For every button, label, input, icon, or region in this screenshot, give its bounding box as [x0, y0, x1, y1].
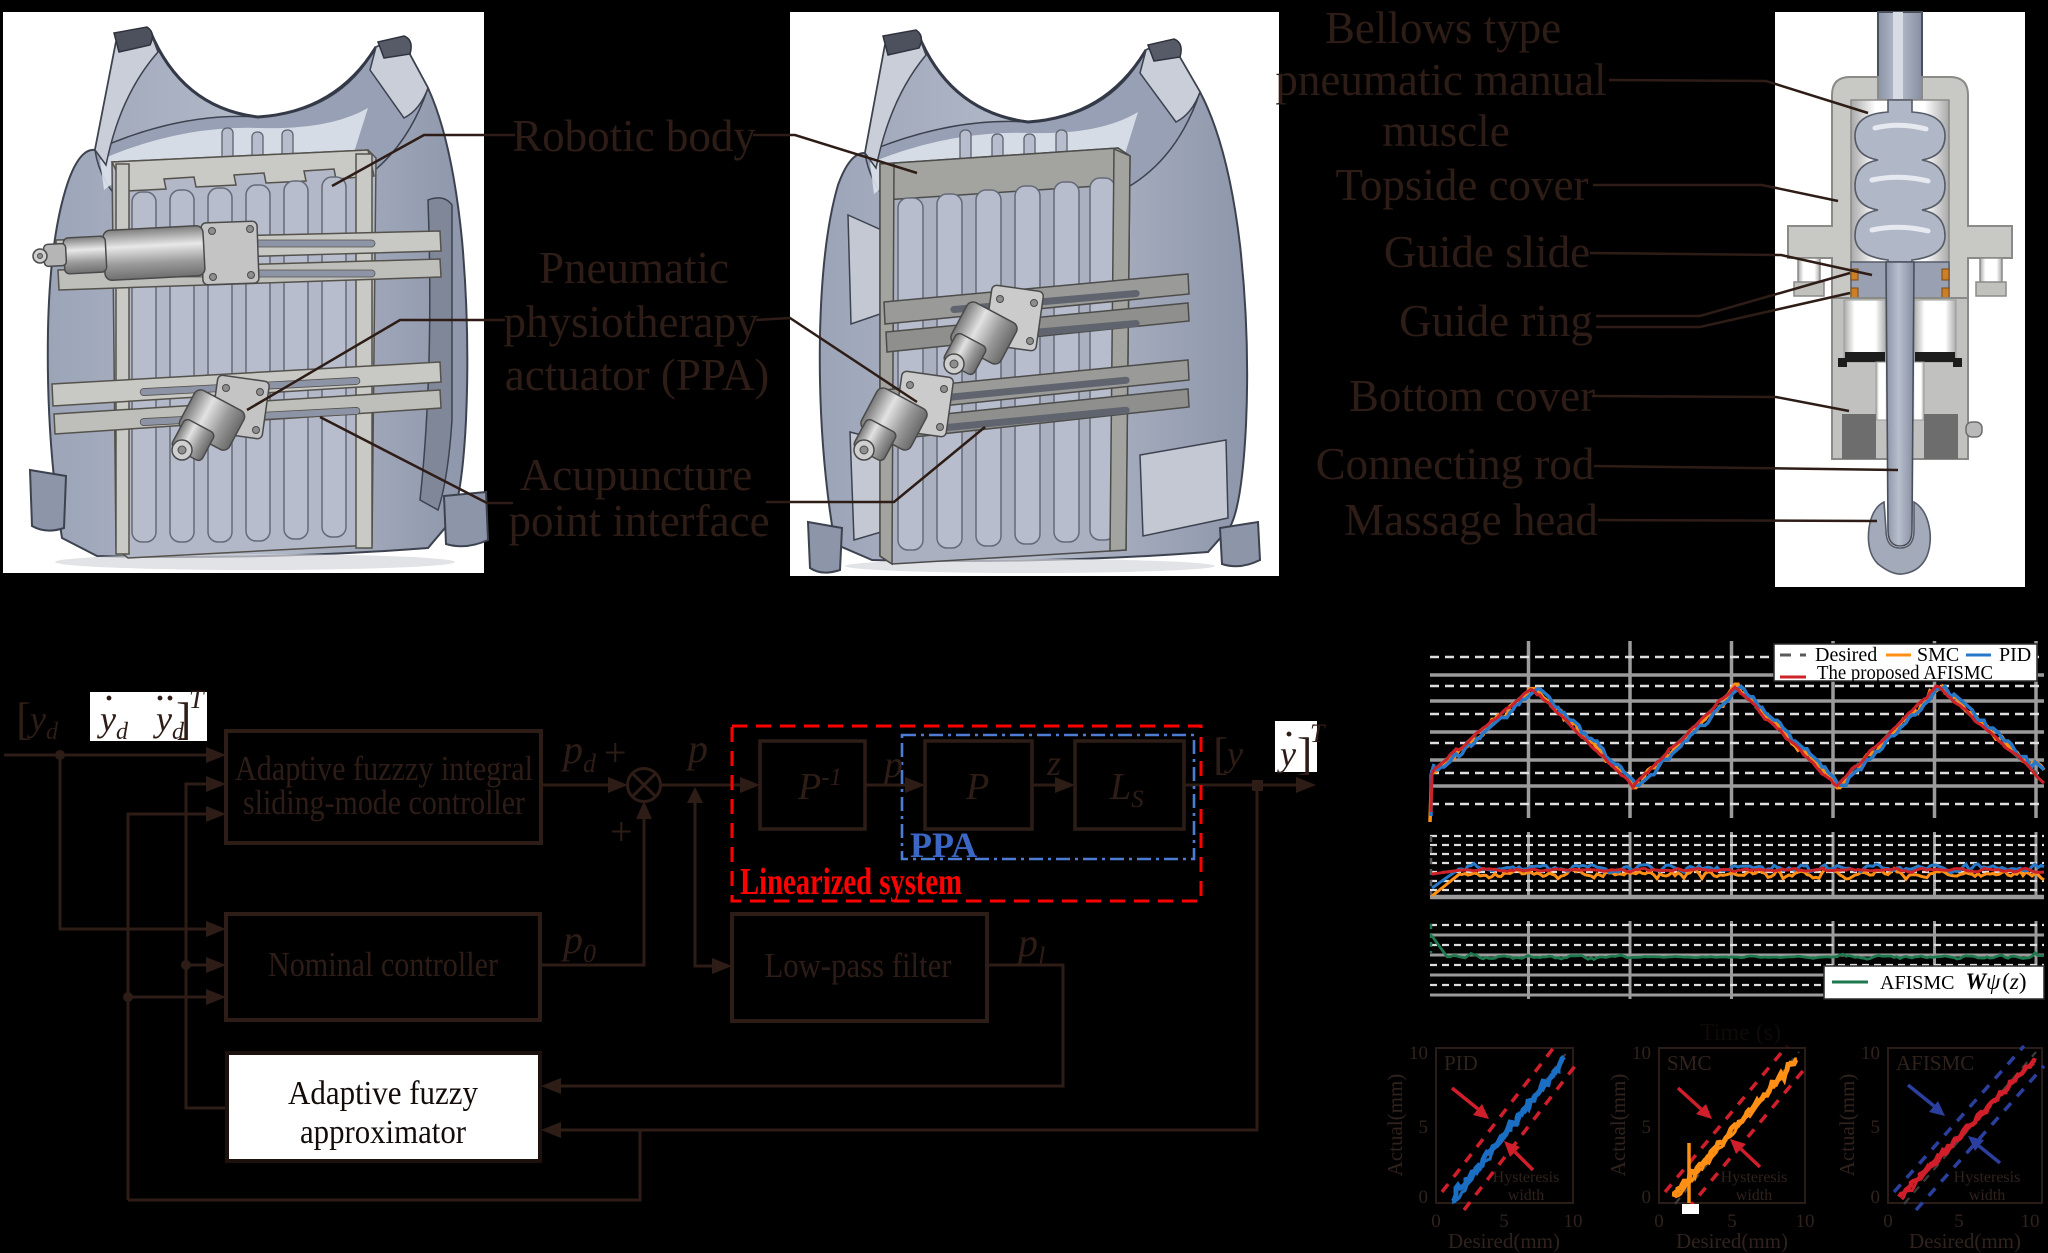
- svg-text:Guide ring: Guide ring: [1399, 296, 1593, 346]
- svg-text:pl: pl: [1015, 920, 1045, 971]
- svg-text:Topside cover: Topside cover: [1335, 160, 1588, 210]
- svg-text:10: 10: [1409, 1043, 1428, 1064]
- svg-text:Actual(mm): Actual(mm): [1606, 1074, 1630, 1177]
- svg-text:Nominal controller: Nominal controller: [268, 945, 498, 984]
- svg-text:0: 0: [1642, 1187, 1652, 1208]
- svg-text:Hysteresis: Hysteresis: [1954, 1169, 2021, 1186]
- svg-text:ˆ: ˆ: [1977, 958, 1983, 978]
- svg-text:PID: PID: [1444, 1051, 1478, 1075]
- svg-text:Massage head: Massage head: [1344, 495, 1598, 545]
- svg-text:width: width: [1969, 1187, 2005, 1204]
- svg-text:p: p: [685, 726, 708, 771]
- svg-text:Adaptive fuzzy: Adaptive fuzzy: [288, 1075, 478, 1112]
- svg-text:Bottom cover: Bottom cover: [1349, 371, 1595, 421]
- svg-text:Guide slide: Guide slide: [1384, 227, 1590, 277]
- svg-text:Robotic body: Robotic body: [512, 111, 756, 161]
- svg-text:··: ··: [155, 682, 175, 715]
- svg-text:10: 10: [1796, 1211, 1815, 1232]
- svg-text:10: 10: [1861, 1043, 1880, 1064]
- svg-text:10: 10: [2021, 1211, 2040, 1232]
- svg-text:0: 0: [1654, 1211, 1664, 1232]
- svg-text:pd: pd: [560, 727, 597, 778]
- svg-text:10: 10: [1632, 1043, 1651, 1064]
- svg-text:Low-pass filter: Low-pass filter: [765, 946, 952, 985]
- svg-text:p: p: [881, 744, 903, 786]
- svg-text:The proposed AFISMC: The proposed AFISMC: [1817, 662, 1993, 684]
- svg-text:yd: yd: [27, 699, 59, 745]
- svg-text:PID: PID: [1999, 644, 2031, 666]
- svg-text:Actual(mm): Actual(mm): [1835, 1074, 1859, 1177]
- svg-text:Bellows type: Bellows type: [1325, 3, 1561, 53]
- svg-text:5: 5: [1871, 1117, 1881, 1138]
- svg-text:y: y: [1224, 734, 1243, 774]
- svg-text:T: T: [189, 685, 205, 714]
- svg-text:Desired(mm): Desired(mm): [1909, 1229, 2021, 1253]
- svg-text:LS: LS: [1109, 766, 1144, 813]
- svg-text:SMC: SMC: [1667, 1051, 1711, 1075]
- svg-text:5: 5: [1642, 1117, 1652, 1138]
- svg-text:Desired(mm): Desired(mm): [1448, 1229, 1560, 1253]
- svg-text:Hysteresis: Hysteresis: [1721, 1169, 1788, 1186]
- svg-text:Pneumatic: Pneumatic: [539, 243, 729, 293]
- svg-text:0: 0: [1871, 1187, 1881, 1208]
- svg-text:·: ·: [104, 682, 114, 715]
- svg-text:+: +: [610, 809, 633, 854]
- svg-text:PPA: PPA: [910, 825, 977, 865]
- svg-text:p0: p0: [560, 917, 596, 968]
- svg-text:Hysteresis: Hysteresis: [1493, 1169, 1560, 1186]
- svg-text:Connecting rod: Connecting rod: [1316, 439, 1595, 489]
- svg-text:Acupuncture: Acupuncture: [520, 450, 752, 500]
- svg-text:Time (s): Time (s): [1700, 1020, 1781, 1046]
- svg-text:P-1: P-1: [797, 764, 842, 808]
- svg-text:z: z: [1046, 743, 1061, 783]
- svg-text:point interface: point interface: [508, 496, 769, 546]
- svg-text:sliding-mode controller: sliding-mode controller: [243, 783, 525, 822]
- svg-text:AFISMC Wψ(z): AFISMC Wψ(z): [1880, 969, 2027, 994]
- svg-text:AFISMC: AFISMC: [1896, 1051, 1974, 1075]
- svg-text:0: 0: [1419, 1187, 1429, 1208]
- svg-text:approximator: approximator: [300, 1114, 467, 1151]
- svg-text:·: ·: [1284, 718, 1294, 751]
- svg-text:physiotherapy: physiotherapy: [504, 297, 759, 347]
- svg-text:actuator (PPA): actuator (PPA): [505, 350, 770, 400]
- svg-text:+: +: [604, 730, 627, 775]
- svg-text:Actual(mm): Actual(mm): [1383, 1074, 1407, 1177]
- svg-text:muscle: muscle: [1382, 106, 1509, 156]
- svg-text:width: width: [1736, 1187, 1772, 1204]
- svg-text:T: T: [1310, 719, 1326, 748]
- svg-text:0: 0: [1883, 1211, 1893, 1232]
- svg-text:10: 10: [1564, 1211, 1583, 1232]
- svg-text:5: 5: [1419, 1117, 1429, 1138]
- svg-text:pneumatic manual: pneumatic manual: [1275, 55, 1606, 105]
- svg-text:Linearized system: Linearized system: [740, 861, 962, 903]
- svg-text:Desired(mm): Desired(mm): [1676, 1229, 1788, 1253]
- svg-text:width: width: [1508, 1187, 1544, 1204]
- svg-text:P: P: [965, 766, 989, 808]
- svg-text:0: 0: [1431, 1211, 1441, 1232]
